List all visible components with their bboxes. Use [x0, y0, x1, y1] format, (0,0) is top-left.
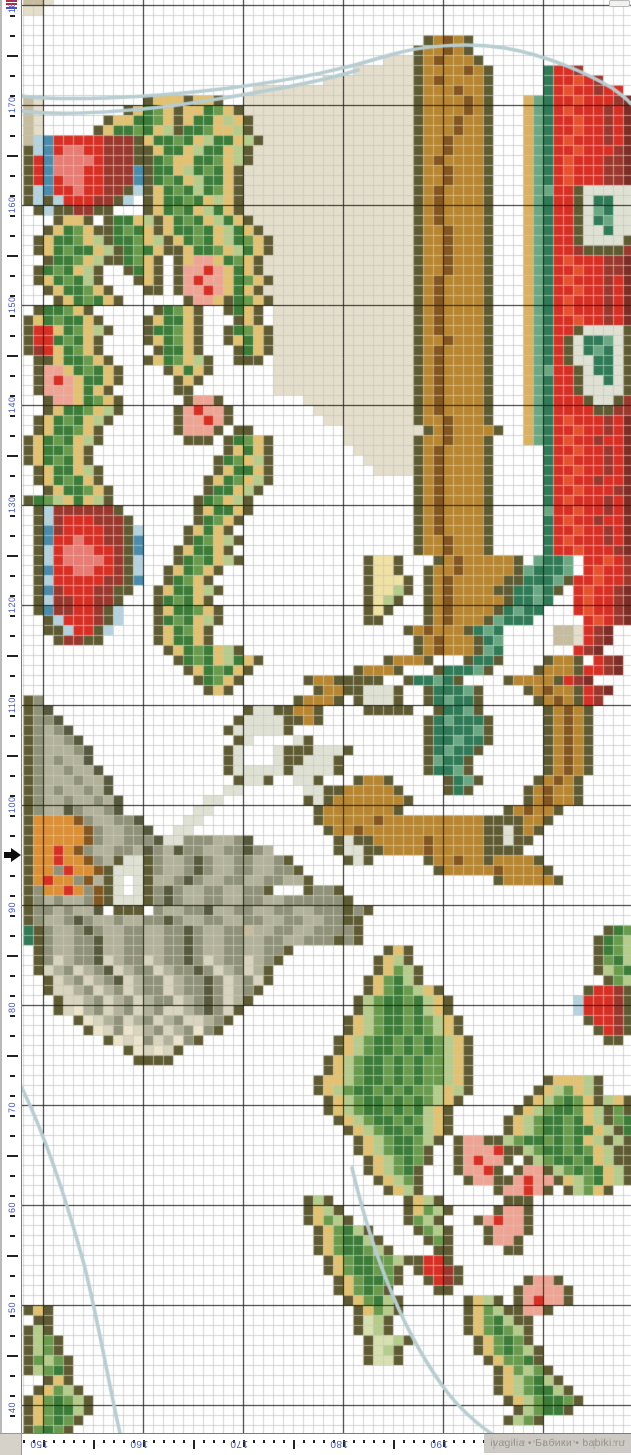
ruler-tick	[463, 1440, 465, 1443]
ruler-tick	[10, 435, 15, 437]
ruler-tick	[7, 755, 18, 757]
vertical-ruler: 180170160150140130120110100908070605040	[0, 0, 22, 1433]
ruler-tick	[10, 315, 15, 317]
ruler-number: 160	[7, 195, 17, 213]
ruler-tick	[173, 1440, 175, 1443]
ruler-tick	[10, 1035, 15, 1037]
ruler-tick	[163, 1440, 165, 1443]
ruler-tick	[7, 1055, 18, 1057]
ruler-tick	[10, 215, 15, 217]
ruler-tick	[10, 975, 15, 977]
ruler-tick	[423, 1440, 425, 1443]
ruler-corner-box	[0, 1433, 22, 1455]
ruler-number: 130	[7, 495, 17, 513]
ruler-number: 120	[7, 595, 17, 613]
ruler-number: 100	[7, 795, 17, 813]
ruler-tick	[7, 455, 18, 457]
ruler-tick	[10, 1315, 15, 1317]
ruler-tick	[10, 235, 15, 237]
ruler-tick	[7, 555, 18, 557]
ruler-tick	[63, 1440, 65, 1443]
ruler-tick	[93, 1440, 95, 1449]
ruler-tick	[10, 875, 15, 877]
ruler-number: 80	[7, 995, 17, 1013]
ruler-tick	[10, 535, 15, 537]
ruler-tick	[23, 1440, 25, 1443]
ruler-tick	[7, 655, 18, 657]
ruler-tick	[10, 735, 15, 737]
ruler-number: 40	[7, 1395, 17, 1413]
ruler-tick	[123, 1440, 125, 1443]
ruler-tick	[7, 1355, 18, 1357]
ruler-tick	[413, 1440, 415, 1443]
ruler-tick	[453, 1440, 455, 1443]
scroll-button[interactable]	[609, 0, 630, 7]
ruler-tick	[10, 1375, 15, 1377]
ruler-tick	[10, 715, 15, 717]
ruler-tick	[10, 335, 15, 337]
ruler-tick	[10, 75, 15, 77]
ruler-tick	[153, 1440, 155, 1443]
ruler-number: 110	[7, 695, 17, 713]
pattern-viewer-window: 180170160150140130120110100908070605040 …	[0, 0, 631, 1455]
ruler-tick	[10, 1135, 15, 1137]
ruler-tick	[10, 675, 15, 677]
ruler-tick	[213, 1440, 215, 1443]
ruler-tick	[10, 1275, 15, 1277]
ruler-tick	[10, 175, 15, 177]
ruler-tick	[10, 415, 15, 417]
ruler-tick	[293, 1440, 295, 1449]
ruler-tick	[113, 1440, 115, 1443]
ruler-number: 150	[7, 295, 17, 313]
ruler-tick	[7, 1255, 18, 1257]
ruler-tick	[313, 1440, 315, 1443]
ruler-tick	[53, 1440, 55, 1443]
ruler-number: 70	[7, 1095, 17, 1113]
ruler-tick	[323, 1440, 325, 1443]
ruler-tick	[10, 775, 15, 777]
ruler-number: 50	[7, 1295, 17, 1313]
ruler-tick	[383, 1440, 385, 1443]
ruler-tick	[7, 355, 18, 357]
ruler-tick	[10, 635, 15, 637]
ruler-tick	[353, 1440, 355, 1443]
ruler-tick	[10, 515, 15, 517]
ruler-tick	[7, 255, 18, 257]
ruler-tick	[73, 1440, 75, 1443]
ruler-tick	[10, 1175, 15, 1177]
ruler-number: 140	[7, 395, 17, 413]
ruler-tick	[10, 1075, 15, 1077]
ruler-tick	[10, 275, 15, 277]
ruler-number: 150	[27, 1438, 51, 1449]
ruler-tick	[183, 1440, 185, 1443]
ruler-tick	[10, 1335, 15, 1337]
ruler-number: 190	[427, 1438, 451, 1449]
ruler-tick	[10, 915, 15, 917]
ruler-tick	[263, 1440, 265, 1443]
ruler-tick	[7, 55, 18, 57]
ruler-number: 180	[7, 0, 17, 13]
ruler-tick	[10, 815, 15, 817]
ruler-tick	[10, 135, 15, 137]
ruler-tick	[10, 1415, 15, 1417]
ruler-number: 90	[7, 895, 17, 913]
ruler-tick	[83, 1440, 85, 1443]
ruler-tick	[393, 1440, 395, 1449]
ruler-tick	[10, 615, 15, 617]
ruler-tick	[10, 1115, 15, 1117]
ruler-tick	[373, 1440, 375, 1443]
ruler-tick	[7, 955, 18, 957]
ruler-tick	[403, 1440, 405, 1443]
ruler-tick	[10, 835, 15, 837]
ruler-tick	[203, 1440, 205, 1443]
ruler-tick	[10, 935, 15, 937]
ruler-tick	[10, 1235, 15, 1237]
ruler-tick	[10, 575, 15, 577]
ruler-tick	[103, 1440, 105, 1443]
ruler-tick	[10, 115, 15, 117]
ruler-tick	[223, 1440, 225, 1443]
ruler-tick	[363, 1440, 365, 1443]
ruler-tick	[473, 1440, 475, 1443]
ruler-number: 160	[127, 1438, 151, 1449]
ruler-tick	[7, 1155, 18, 1157]
ruler-tick	[283, 1440, 285, 1443]
ruler-tick	[253, 1440, 255, 1443]
ruler-tick	[10, 475, 15, 477]
ruler-tick	[10, 15, 15, 17]
center-arrow-marker	[11, 848, 21, 862]
ruler-number: 60	[7, 1195, 17, 1213]
ruler-number: 180	[327, 1438, 351, 1449]
ruler-tick	[10, 375, 15, 377]
ruler-number: 170	[7, 95, 17, 113]
pattern-chart-canvas[interactable]	[22, 0, 631, 1433]
ruler-tick	[7, 155, 18, 157]
ruler-tick	[303, 1440, 305, 1443]
ruler-tick	[10, 1015, 15, 1017]
ruler-tick	[10, 35, 15, 37]
ruler-number: 170	[227, 1438, 251, 1449]
watermark: ivagilia • Бабики • babiki.ru	[484, 1434, 631, 1453]
ruler-tick	[10, 1215, 15, 1217]
ruler-tick	[193, 1440, 195, 1449]
ruler-tick	[273, 1440, 275, 1443]
